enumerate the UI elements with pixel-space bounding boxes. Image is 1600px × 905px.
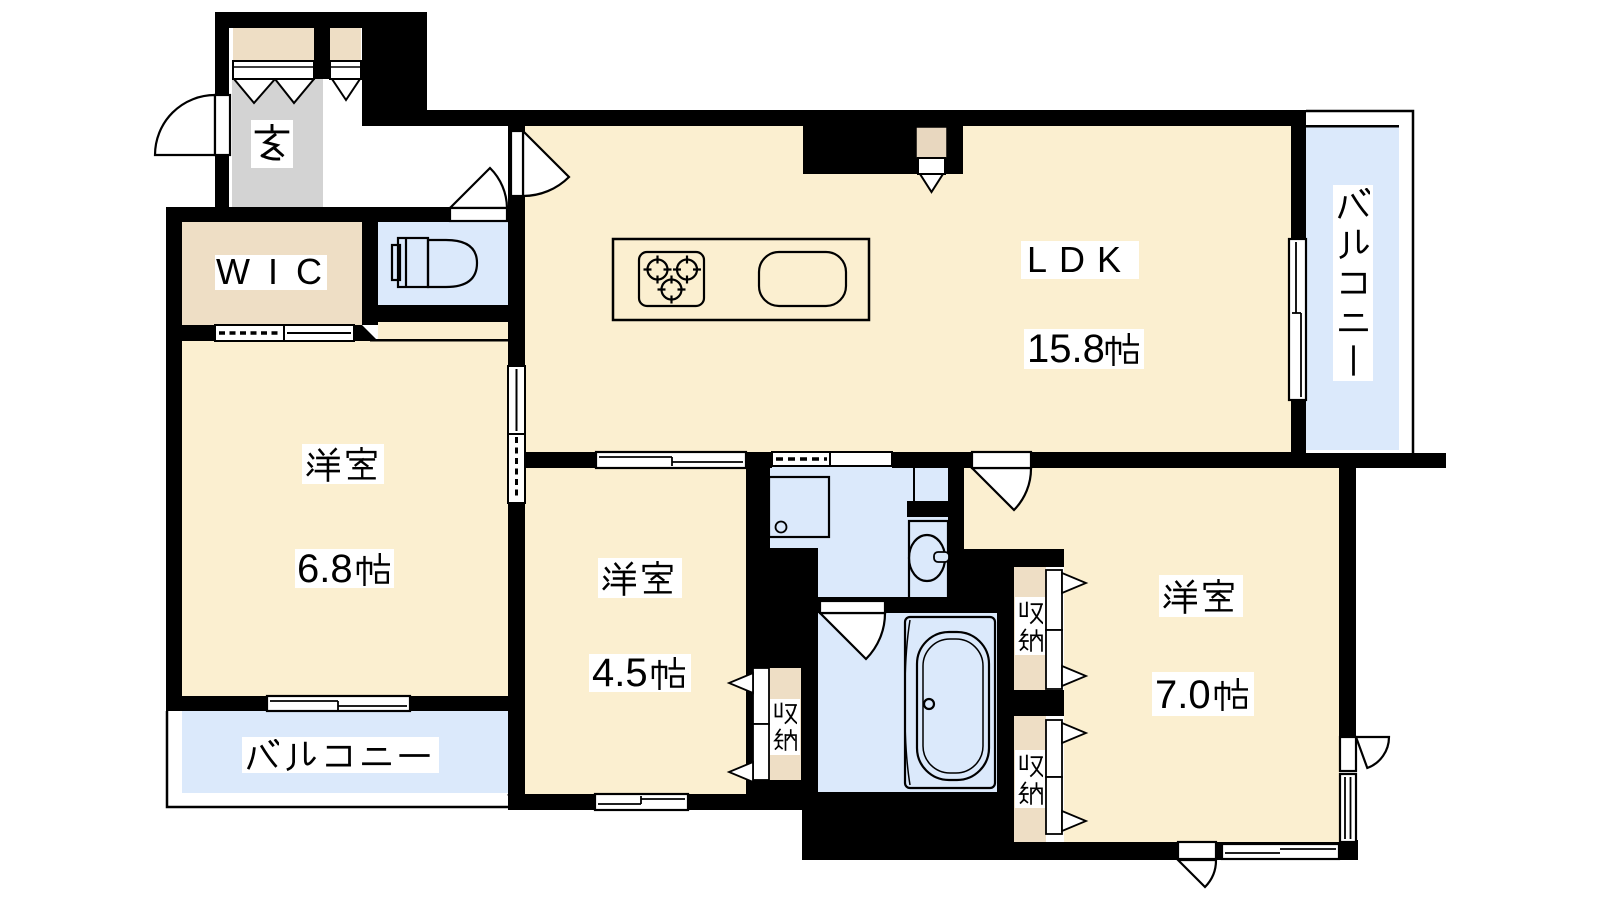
svg-text:15.8: 15.8 — [1027, 327, 1105, 371]
svg-text:W I C: W I C — [216, 251, 326, 292]
svg-text:LDK: LDK — [1027, 239, 1133, 280]
svg-text:6.8: 6.8 — [297, 547, 353, 591]
svg-text:4.5: 4.5 — [592, 651, 648, 695]
svg-text:7.0: 7.0 — [1155, 673, 1211, 717]
